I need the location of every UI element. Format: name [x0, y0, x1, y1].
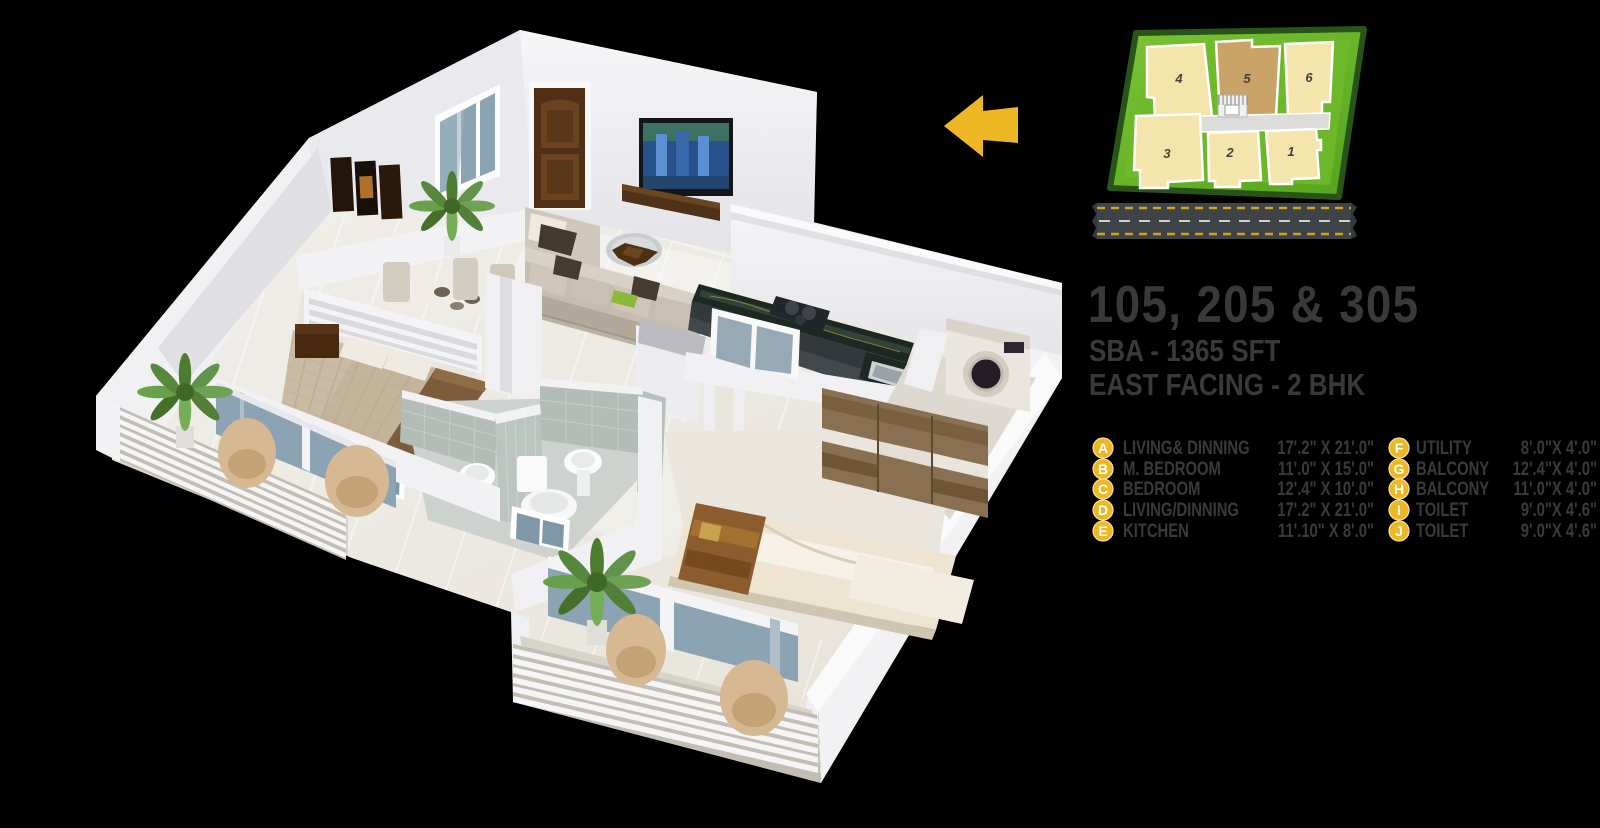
- svg-text:12'.4"X 4'.0": 12'.4"X 4'.0": [1513, 458, 1597, 479]
- svg-text:G: G: [1394, 461, 1405, 477]
- svg-text:3: 3: [1163, 146, 1171, 161]
- svg-text:TOILET: TOILET: [1416, 520, 1469, 541]
- svg-text:5: 5: [1243, 71, 1251, 86]
- svg-text:4: 4: [1174, 71, 1183, 86]
- svg-text:9'.0"X 4'.6": 9'.0"X 4'.6": [1521, 499, 1597, 520]
- svg-text:J: J: [1395, 523, 1403, 539]
- svg-text:C: C: [1098, 481, 1108, 497]
- svg-text:LIVING& DINNING: LIVING& DINNING: [1123, 437, 1250, 458]
- svg-text:B: B: [1098, 461, 1108, 477]
- svg-text:BALCONY: BALCONY: [1416, 478, 1490, 499]
- svg-text:8'.0"X 4'.0": 8'.0"X 4'.0": [1521, 437, 1597, 458]
- svg-text:BEDROOM: BEDROOM: [1123, 478, 1200, 499]
- svg-text:1: 1: [1287, 144, 1294, 159]
- svg-text:TOILET: TOILET: [1416, 499, 1469, 520]
- svg-text:EAST FACING - 2 BHK: EAST FACING - 2 BHK: [1089, 368, 1365, 403]
- svg-text:D: D: [1098, 502, 1108, 518]
- svg-text:11'.0"X 4'.0": 11'.0"X 4'.0": [1513, 478, 1597, 499]
- svg-text:17'.2" X 21'.0": 17'.2" X 21'.0": [1277, 499, 1374, 520]
- svg-text:17'.2" X 21'.0": 17'.2" X 21'.0": [1277, 437, 1374, 458]
- svg-text:M. BEDROOM: M. BEDROOM: [1123, 458, 1221, 479]
- svg-text:9'.0"X 4'.6": 9'.0"X 4'.6": [1521, 520, 1597, 541]
- svg-text:12'.4" X 10'.0": 12'.4" X 10'.0": [1277, 478, 1374, 499]
- svg-text:LIVING/DINNING: LIVING/DINNING: [1123, 499, 1239, 520]
- svg-text:KITCHEN: KITCHEN: [1123, 520, 1189, 541]
- svg-text:A: A: [1098, 440, 1108, 456]
- svg-text:BALCONY: BALCONY: [1416, 458, 1490, 479]
- svg-text:F: F: [1395, 440, 1404, 456]
- svg-text:SBA - 1365 SFT: SBA - 1365 SFT: [1089, 334, 1281, 369]
- svg-text:11'.10" X 8'.0": 11'.10" X 8'.0": [1278, 520, 1374, 541]
- svg-text:11'.0" X 15'.0": 11'.0" X 15'.0": [1278, 458, 1374, 479]
- svg-text:UTILITY: UTILITY: [1416, 437, 1472, 458]
- svg-text:E: E: [1098, 523, 1107, 539]
- svg-text:I: I: [1397, 502, 1401, 518]
- svg-text:H: H: [1394, 481, 1404, 497]
- svg-text:6: 6: [1305, 70, 1313, 85]
- svg-text:105, 205 & 305: 105, 205 & 305: [1088, 276, 1419, 333]
- svg-text:2: 2: [1225, 145, 1234, 160]
